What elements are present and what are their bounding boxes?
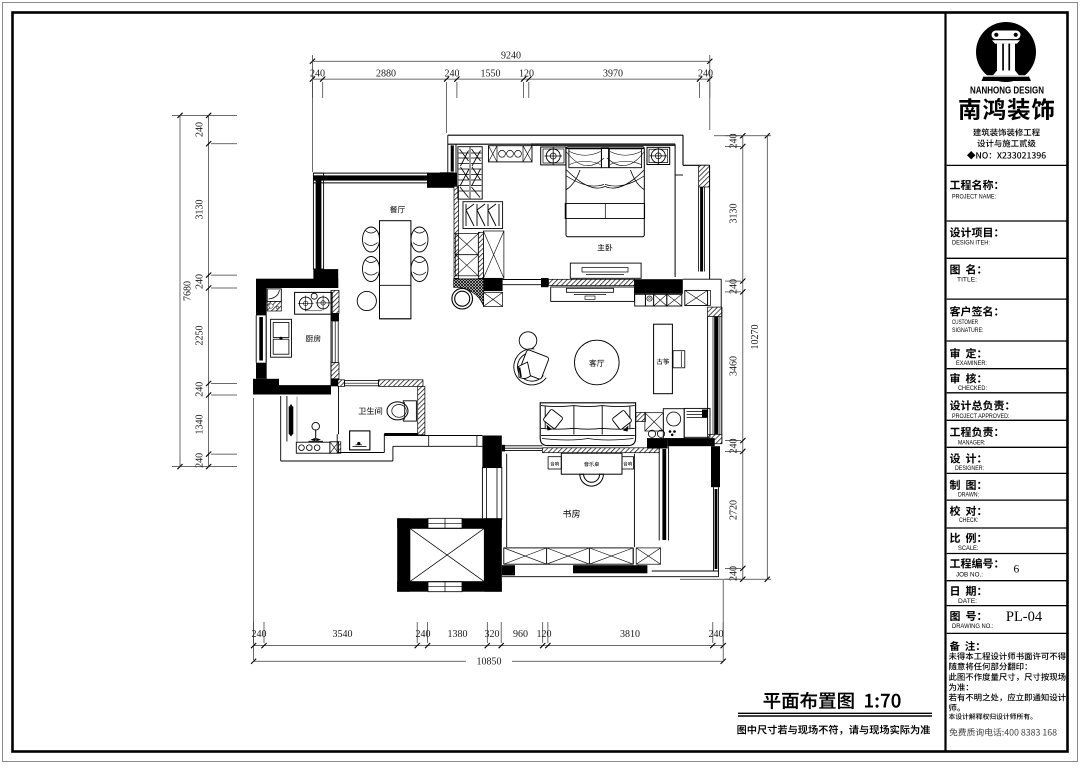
svg-text:240: 240 bbox=[195, 382, 206, 397]
svg-text:2880: 2880 bbox=[376, 69, 396, 80]
svg-text:1380: 1380 bbox=[448, 629, 468, 640]
svg-text:3130: 3130 bbox=[729, 204, 740, 224]
svg-text:3130: 3130 bbox=[195, 200, 206, 220]
svg-text:2720: 2720 bbox=[729, 500, 740, 520]
svg-text:320: 320 bbox=[485, 629, 500, 640]
svg-text:DESIGN ITEH:: DESIGN ITEH: bbox=[952, 240, 990, 247]
svg-text:120: 120 bbox=[519, 69, 534, 80]
svg-text:10850: 10850 bbox=[477, 657, 502, 668]
svg-text:CUSTOMER: CUSTOMER bbox=[952, 319, 978, 326]
svg-text:CHECKED:: CHECKED: bbox=[958, 385, 987, 392]
svg-text:DESIGNER:: DESIGNER: bbox=[955, 465, 984, 472]
svg-text:1550: 1550 bbox=[481, 69, 501, 80]
svg-text:3970: 3970 bbox=[603, 69, 623, 80]
svg-text:240: 240 bbox=[252, 629, 267, 640]
svg-text:3810: 3810 bbox=[620, 629, 640, 640]
svg-text:2250: 2250 bbox=[195, 326, 206, 346]
svg-text:TITLE:: TITLE: bbox=[957, 277, 977, 284]
svg-text:7680: 7680 bbox=[183, 281, 194, 301]
svg-text:240: 240 bbox=[195, 122, 206, 137]
svg-text:3460: 3460 bbox=[729, 356, 740, 376]
svg-text:120: 120 bbox=[537, 629, 552, 640]
svg-text:10270: 10270 bbox=[750, 325, 761, 350]
svg-text:240: 240 bbox=[195, 453, 206, 468]
svg-text:DATE:: DATE: bbox=[958, 598, 977, 605]
svg-text:240: 240 bbox=[698, 69, 713, 80]
svg-text:240: 240 bbox=[729, 439, 740, 454]
svg-text:EXAMINER:: EXAMINER: bbox=[956, 360, 987, 367]
svg-text:NANHONG DESIGN: NANHONG DESIGN bbox=[970, 85, 1044, 97]
svg-text:CHECK:: CHECK: bbox=[959, 517, 979, 524]
svg-text:PL-04: PL-04 bbox=[1006, 609, 1043, 625]
svg-text:SIGNATURE:: SIGNATURE: bbox=[952, 327, 984, 334]
svg-text:240: 240 bbox=[310, 69, 325, 80]
svg-text:PROJECT APPROVED:: PROJECT APPROVED: bbox=[952, 413, 1010, 420]
svg-text:240: 240 bbox=[445, 69, 460, 80]
svg-text:JOB NO.:: JOB NO.: bbox=[956, 572, 983, 579]
svg-text:960: 960 bbox=[513, 629, 528, 640]
svg-text:240: 240 bbox=[709, 629, 724, 640]
svg-text:1340: 1340 bbox=[195, 415, 206, 435]
svg-text:9240: 9240 bbox=[501, 51, 521, 62]
svg-text:240: 240 bbox=[195, 274, 206, 289]
svg-text:PROJECT NAME:: PROJECT NAME: bbox=[952, 194, 996, 201]
svg-text:240: 240 bbox=[416, 629, 431, 640]
svg-text:3540: 3540 bbox=[333, 629, 353, 640]
svg-text:SCALE:: SCALE: bbox=[958, 545, 979, 552]
svg-text:DRAWN:: DRAWN: bbox=[958, 492, 979, 499]
svg-text:240: 240 bbox=[729, 279, 740, 294]
svg-text:DRAWING NO.:: DRAWING NO.: bbox=[952, 623, 994, 630]
svg-text:6: 6 bbox=[1014, 564, 1020, 576]
svg-text:240: 240 bbox=[729, 134, 740, 149]
svg-text:MANAGER:: MANAGER: bbox=[958, 440, 986, 447]
svg-text:240: 240 bbox=[729, 566, 740, 581]
